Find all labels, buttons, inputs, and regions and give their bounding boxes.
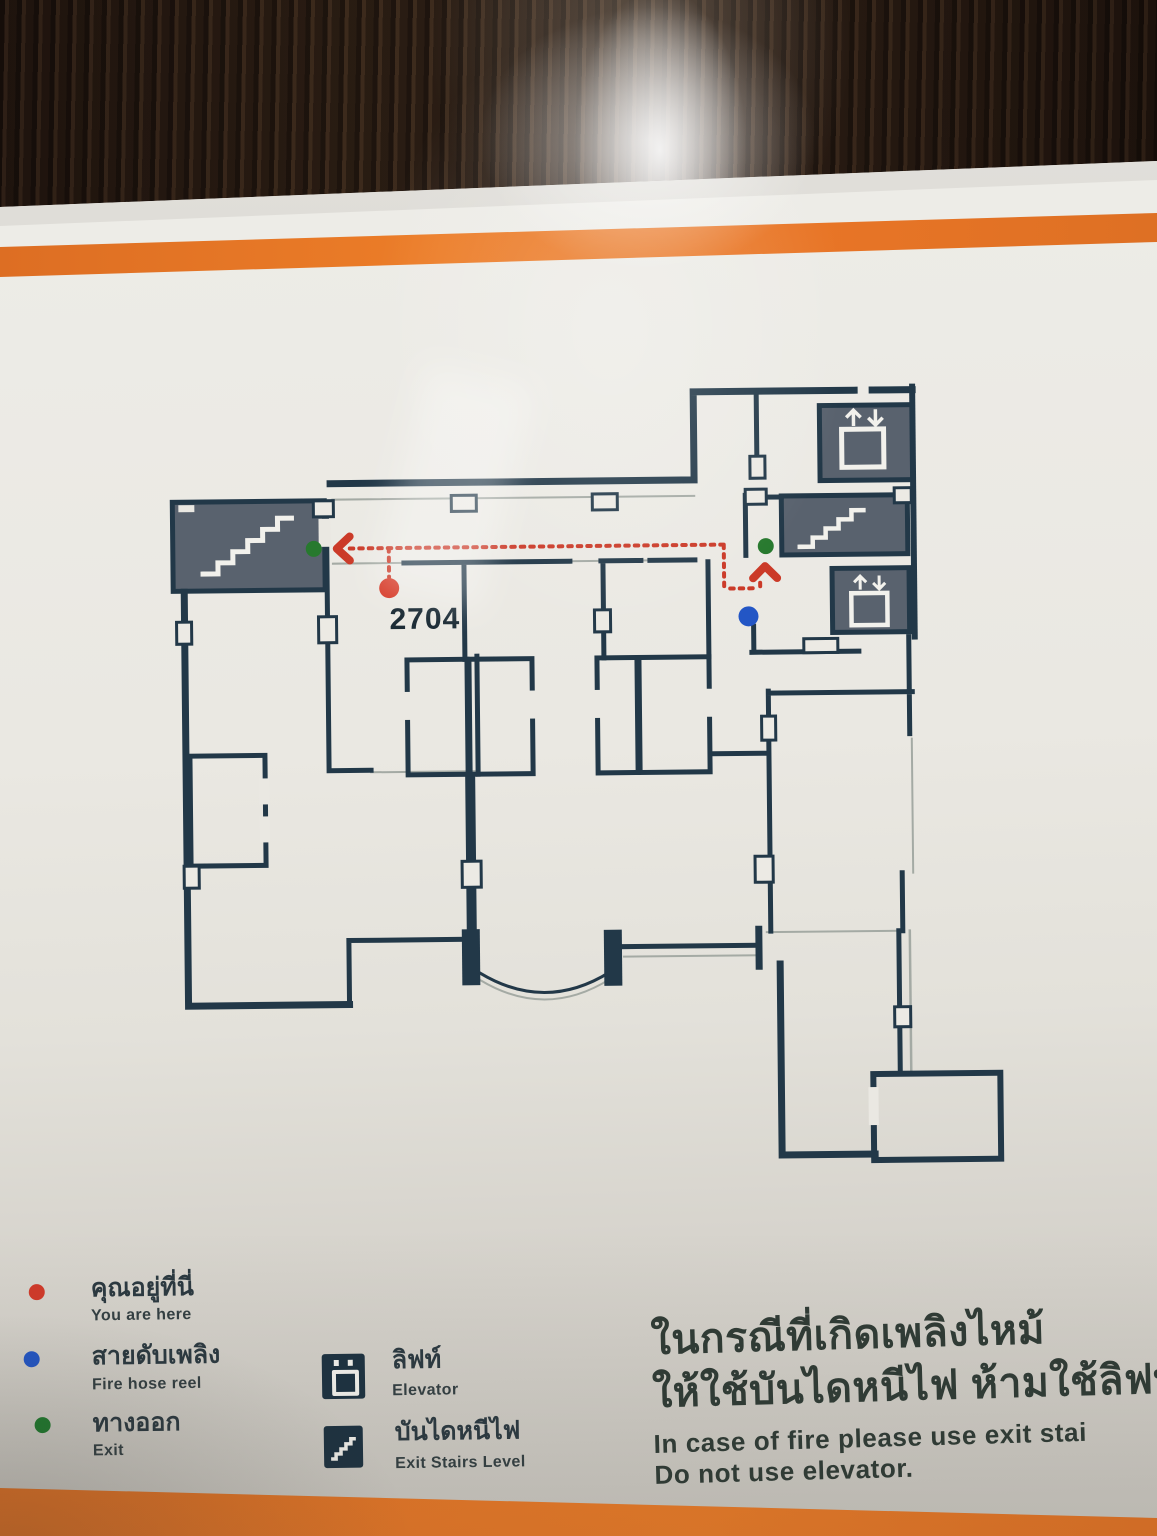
stairs-legend-icon <box>324 1426 364 1469</box>
photo-canvas: 2704 คุณอยู่ที่นี่ You are here สายดับเพ… <box>0 0 1157 1536</box>
legend-thai-label: คุณอยู่ที่นี่ <box>90 1271 194 1304</box>
legend-english-label: Exit <box>93 1441 124 1460</box>
legend-english-label: You are here <box>91 1305 192 1325</box>
legend-thai-label: ลิฟท์ <box>392 1344 442 1377</box>
legend-english-label: Fire hose reel <box>92 1374 202 1395</box>
legend-thai-label: สายดับเพลิง <box>91 1339 220 1373</box>
fire-hose-legend-dot <box>24 1351 40 1367</box>
exit-legend-dot <box>35 1417 51 1433</box>
legend-thai-label: บันไดหนีไฟ <box>395 1414 521 1448</box>
legend-english-label: Elevator <box>392 1380 459 1400</box>
legend-english-label: Exit Stairs Level <box>395 1452 526 1473</box>
you-are-here-legend-dot <box>29 1284 45 1300</box>
elevator-legend-icon <box>322 1354 366 1400</box>
legend-thai-label: ทางออก <box>92 1406 180 1439</box>
fire-warning-block: ในกรณีที่เกิดเพลิงไหม้ ให้ใช้บันไดหนีไฟ … <box>650 1298 1157 1491</box>
